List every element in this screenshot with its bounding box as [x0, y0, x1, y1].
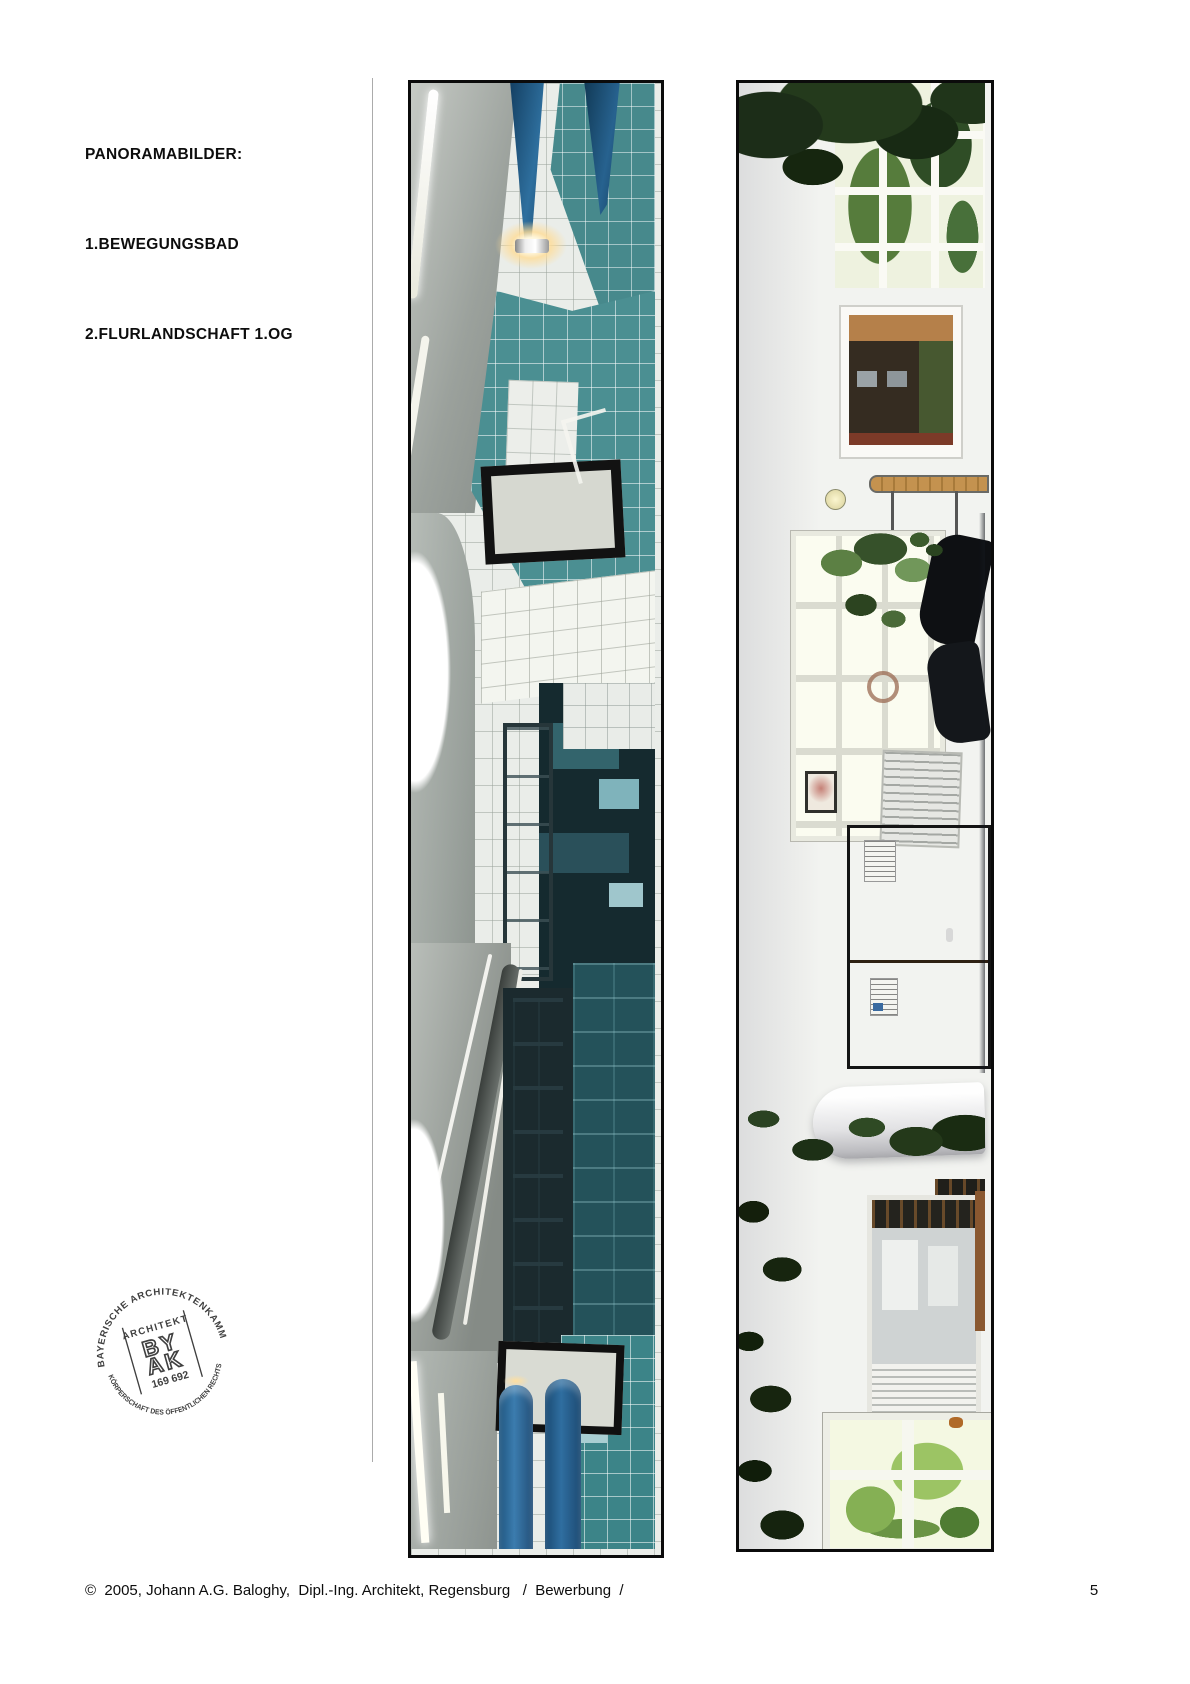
- interior-glazing-unit: [867, 1195, 981, 1425]
- wall-niche-frame: [839, 305, 963, 459]
- glazing-slat-band: [872, 1364, 976, 1420]
- glazing-reflection-2: [928, 1246, 958, 1306]
- page-title: PANORAMABILDER:: [85, 140, 293, 170]
- stamp-seal-graphic: BAYERISCHE ARCHITEKTENKAMMER KÖRPERSCHAF…: [88, 1270, 232, 1418]
- bottom-garden-window: [823, 1413, 991, 1549]
- leaf-silhouettes-left: [739, 1183, 811, 1543]
- foliage-top-mass: [739, 83, 985, 223]
- white-tile-patch-upper: [563, 683, 655, 749]
- document-page: PANORAMABILDER: 1.BEWEGUNGSBAD 2.FLURLAN…: [0, 0, 1190, 1684]
- page-title-block: PANORAMABILDER: 1.BEWEGUNGSBAD 2.FLURLAN…: [85, 80, 293, 410]
- panorama-caption-2: 2.FLURLANDSCHAFT 1.OG: [85, 320, 293, 350]
- glazing-reflection-1: [882, 1240, 918, 1310]
- pool-panorama-content: [411, 83, 661, 1555]
- kayak-bottom-1: [499, 1385, 533, 1549]
- stitch-white-notch-1: [411, 551, 451, 793]
- wooden-bench-rail: [869, 475, 989, 493]
- niche-red-base: [849, 433, 953, 445]
- corridor-panorama-content: [739, 83, 991, 1549]
- pool-water-dark: [573, 963, 655, 1363]
- wall-lamp-fixture: [515, 239, 549, 253]
- bench-leg-2: [955, 491, 958, 541]
- panorama-flurlandschaft-image: [736, 80, 994, 1552]
- niche-green-panel: [919, 341, 953, 433]
- niche-interior-dark: [849, 341, 919, 433]
- stitch-white-notch-2: [411, 1119, 445, 1323]
- door-wreath-ring: [867, 671, 899, 703]
- panorama-caption-1: 1.BEWEGUNGSBAD: [85, 230, 293, 260]
- panorama-bewegungsbad-image: [408, 80, 664, 1558]
- page-number: 5: [1082, 1582, 1106, 1599]
- architect-chamber-stamp: BAYERISCHE ARCHITEKTENKAMMER KÖRPERSCHAF…: [88, 1270, 232, 1418]
- door-hook: [946, 928, 953, 942]
- flowerpot-dot: [949, 1417, 963, 1428]
- tall-window-glazing: [513, 998, 563, 1348]
- pinned-paper-2: [870, 978, 898, 1016]
- floor-clock-face: [825, 489, 846, 510]
- footer-copyright: © 2005, Johann A.G. Baloghy, Dipl.-Ing. …: [85, 1582, 624, 1599]
- glazing-dark-transom: [872, 1200, 976, 1228]
- kayak-bottom-2: [545, 1379, 581, 1549]
- wooden-pinboard-door: [847, 825, 991, 1069]
- niche-wood-top: [849, 315, 953, 341]
- right-edge-shadow: [979, 513, 985, 1073]
- potted-plant-sprig: [907, 519, 949, 571]
- picture-frame: [805, 771, 837, 813]
- pinned-paper-1: [864, 840, 896, 882]
- vertical-divider-line: [372, 78, 373, 1462]
- door-sliver-right: [975, 1191, 985, 1331]
